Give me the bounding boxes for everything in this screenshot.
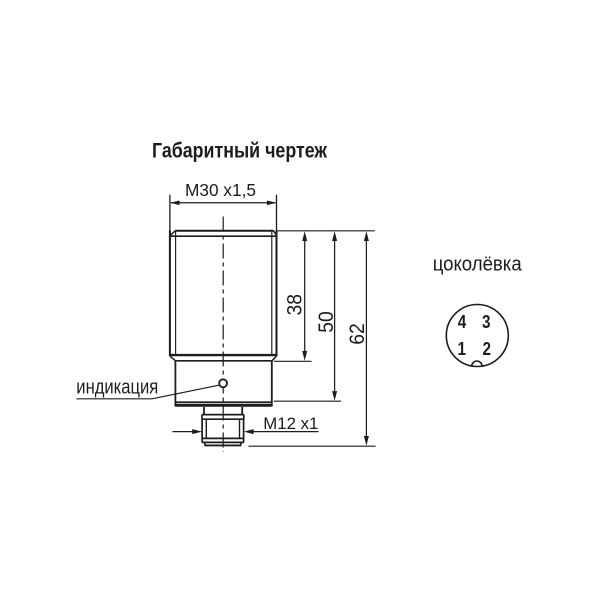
svg-text:M12 x1: M12 x1 — [263, 414, 318, 433]
svg-text:1: 1 — [458, 339, 467, 359]
svg-text:M30 x1,5: M30 x1,5 — [185, 180, 256, 200]
svg-text:3: 3 — [482, 312, 491, 332]
svg-text:индикация: индикация — [76, 377, 158, 399]
svg-text:4: 4 — [458, 312, 467, 332]
svg-text:38: 38 — [282, 294, 306, 316]
svg-text:62: 62 — [345, 323, 369, 345]
svg-text:50: 50 — [314, 311, 338, 333]
svg-text:цоколёвка: цоколёвка — [433, 254, 523, 276]
svg-text:2: 2 — [482, 339, 491, 359]
svg-text:Габаритный чертеж: Габаритный чертеж — [152, 139, 328, 163]
